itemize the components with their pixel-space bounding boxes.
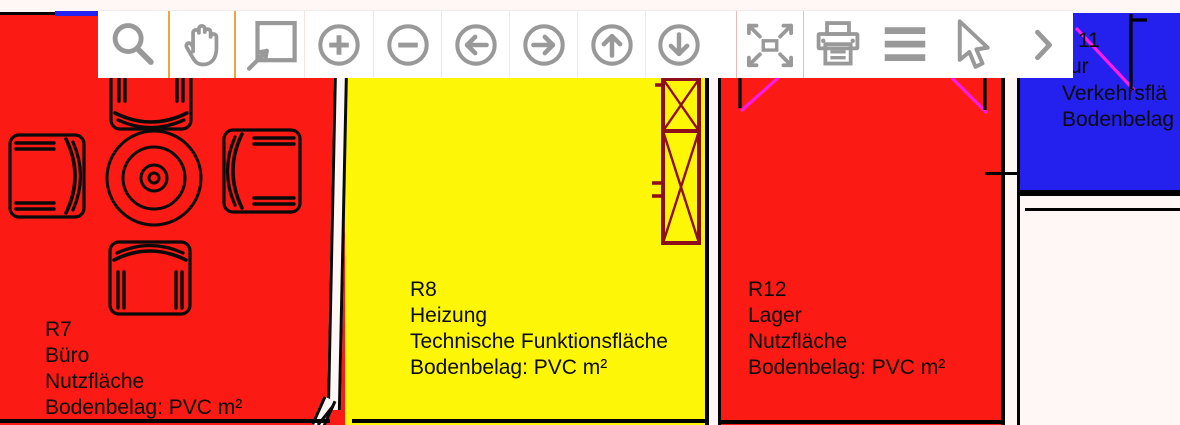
zoom-window-icon	[244, 18, 298, 72]
select-cursor-button[interactable]	[938, 11, 1006, 78]
pan-left-icon	[450, 19, 502, 71]
room-id: R8	[410, 277, 668, 303]
fit-extents-button[interactable]	[737, 11, 803, 78]
room-name: Lager	[748, 303, 945, 329]
pan-up-button[interactable]	[578, 11, 645, 78]
room-floor: Bodenbelag: PVC m²	[748, 355, 945, 381]
room-floor: Bodenbelag: PVC m²	[45, 395, 242, 421]
print-button[interactable]	[804, 11, 871, 78]
cursor-icon	[944, 17, 1000, 73]
floorplan-canvas[interactable]: R7BüroNutzflächeBodenbelag: PVC m² R8Hei…	[0, 0, 1180, 425]
wall-bottom-r12	[721, 420, 1001, 424]
room-r11-usage-fragment: Verkehrsflä	[1062, 82, 1167, 106]
navigation-toolbar	[98, 10, 1073, 78]
chevron-right-icon	[1018, 21, 1066, 69]
top-blue-wall-line	[55, 11, 100, 16]
menu-button[interactable]	[871, 11, 938, 78]
toolbar-expand-button[interactable]	[1010, 11, 1073, 78]
zoom-in-icon	[313, 19, 365, 71]
zoom-in-button[interactable]	[305, 11, 373, 78]
room-r11-id-fragment: 11	[1078, 29, 1100, 53]
zoom-window-button[interactable]	[237, 11, 304, 78]
room-usage: Nutzfläche	[45, 369, 242, 395]
room-r12-label: R12LagerNutzflächeBodenbelag: PVC m²	[748, 277, 945, 381]
room-id: R7	[45, 317, 242, 343]
room-name: Heizung	[410, 303, 668, 329]
room-floor: Bodenbelag: PVC m²	[410, 355, 668, 381]
room-r8-label: R8HeizungTechnische FunktionsflächeBoden…	[410, 277, 668, 381]
room-usage: Nutzfläche	[748, 329, 945, 355]
room-r7-label: R7BüroNutzflächeBodenbelag: PVC m²	[45, 317, 242, 421]
wall-blue-bottom	[1019, 190, 1180, 196]
room-id: R12	[748, 277, 945, 303]
pan-right-icon	[518, 19, 570, 71]
wall-bottom-r8	[352, 419, 705, 423]
active-tool-separator-right	[234, 11, 236, 78]
pan-up-icon	[586, 19, 638, 71]
pan-right-button[interactable]	[510, 11, 577, 78]
zoom-out-icon	[382, 19, 434, 71]
pan-hand-button[interactable]	[170, 11, 234, 78]
pan-down-icon	[653, 19, 705, 71]
wall-below-blue	[1025, 208, 1180, 211]
top-wall-line	[0, 12, 57, 15]
room-r11-floor-fragment: Bodenbelag	[1062, 108, 1174, 132]
room-name: Büro	[45, 343, 242, 369]
zoom-search-button[interactable]	[98, 11, 168, 78]
printer-icon	[811, 18, 865, 72]
zoom-out-button[interactable]	[374, 11, 441, 78]
magnifier-icon	[107, 19, 159, 71]
room-usage: Technische Funktionsfläche	[410, 329, 668, 355]
fit-extents-icon	[743, 18, 797, 72]
wall-tick-horizontal	[985, 172, 1020, 175]
hand-pan-icon	[176, 19, 228, 71]
pan-down-button[interactable]	[646, 11, 712, 78]
pan-left-button[interactable]	[442, 11, 509, 78]
menu-icon	[878, 18, 932, 72]
